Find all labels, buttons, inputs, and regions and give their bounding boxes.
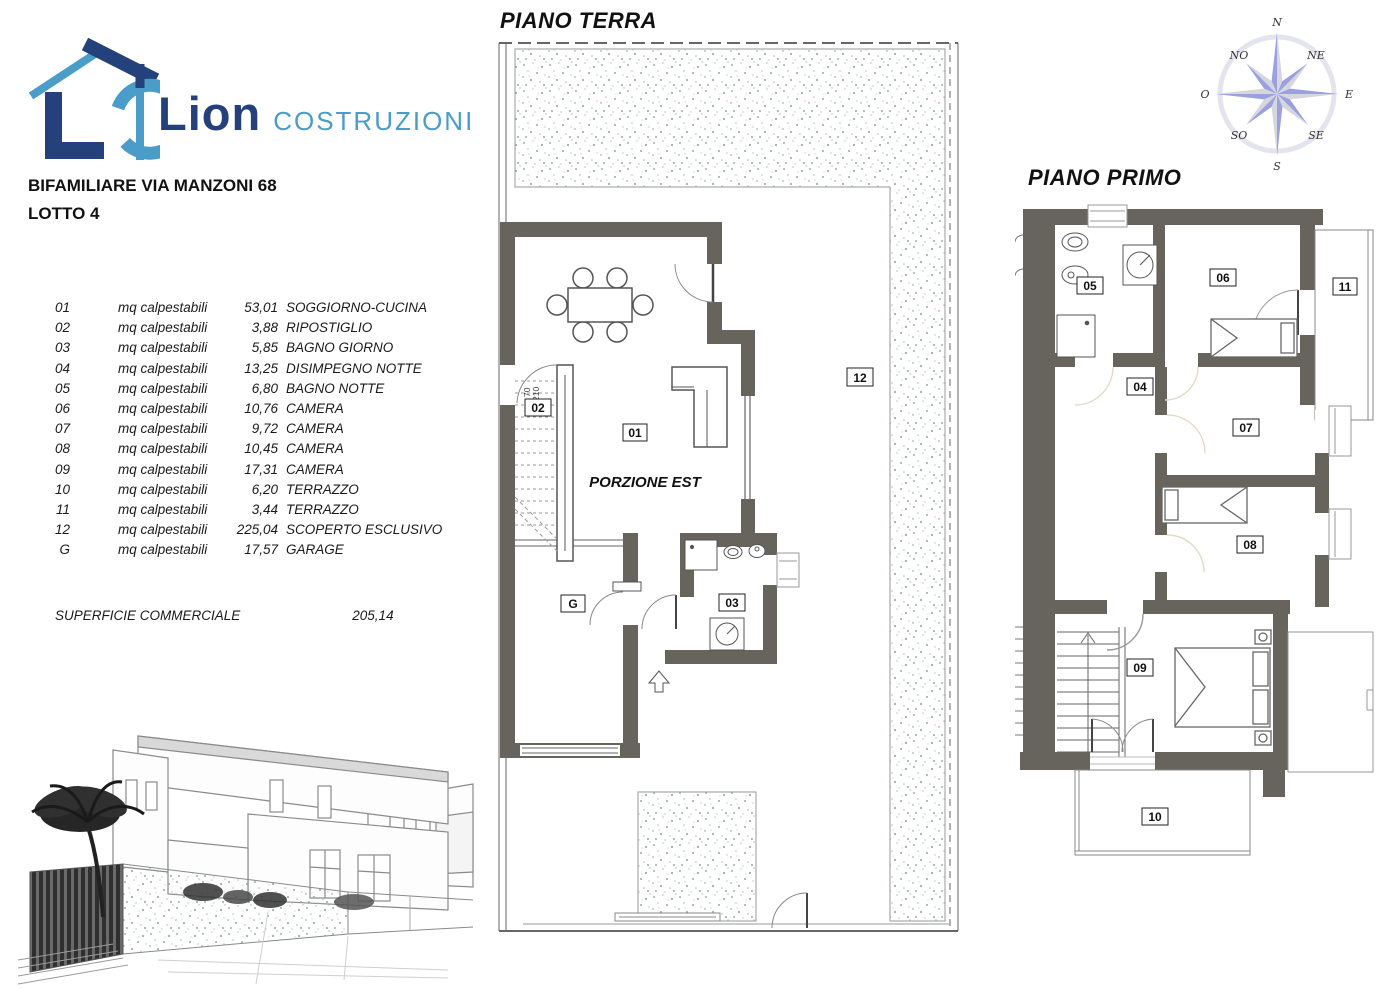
- table-row: 02mq calpestabili3,88RIPOSTIGLIO: [48, 320, 442, 340]
- summary-label: SUPERFICIE COMMERCIALE: [55, 608, 240, 623]
- brand-suffix: COSTRUZIONI: [273, 106, 474, 137]
- room-label-02: 02: [531, 401, 545, 415]
- first-floor-plan: 05 06 11 04 07 08 09 10: [1015, 195, 1385, 915]
- room-label-12: 12: [853, 371, 867, 385]
- room-label-garage: G: [568, 597, 577, 611]
- table-row: 08mq calpestabili10,45CAMERA: [48, 441, 442, 461]
- sink: [685, 540, 717, 570]
- compass-se: SE: [1308, 129, 1324, 142]
- table-row: 06mq calpestabili10,76CAMERA: [48, 401, 442, 421]
- room-label-07: 07: [1239, 421, 1253, 435]
- summary-value: 205,14: [352, 608, 393, 623]
- driveway-stipple: [638, 792, 756, 921]
- company-brandline: Lion COSTRUZIONI: [158, 86, 474, 141]
- table-row: 05mq calpestabili6,80BAGNO NOTTE: [48, 381, 442, 401]
- bathroom-05-fixtures: [1057, 233, 1157, 357]
- table-row: 11mq calpestabili3,44TERRAZZO: [48, 502, 442, 522]
- table-row: 09mq calpestabili17,31CAMERA: [48, 462, 442, 482]
- compass-e: E: [1344, 88, 1353, 101]
- bathroom-window: [777, 553, 799, 587]
- exterior-render-sketch: [18, 722, 478, 987]
- compass-s: S: [1273, 160, 1281, 172]
- adjacent-unit-hints: [1015, 235, 1023, 735]
- project-lot: LOTTO 4: [28, 200, 277, 228]
- ground-floor-plan: 70 210 01: [495, 35, 965, 935]
- areas-table: 01mq calpestabili53,01SOGGIORNO-CUCINA 0…: [48, 300, 442, 562]
- courtyard-stipple-area: [515, 49, 945, 921]
- room-label-09: 09: [1133, 661, 1147, 675]
- double-bed-room09: [1175, 630, 1271, 745]
- room-label-06: 06: [1216, 271, 1230, 285]
- compass-n: N: [1271, 16, 1282, 29]
- room-label-11: 11: [1339, 280, 1352, 294]
- bed-room08: [1162, 487, 1247, 523]
- windows: [742, 396, 799, 587]
- room-label-10: 10: [1148, 810, 1162, 824]
- french-door: [1090, 719, 1155, 764]
- table-row: 03mq calpestabili5,85BAGNO GIORNO: [48, 340, 442, 360]
- company-logo-house-icon: [25, 30, 160, 165]
- compass-rose: N NE E SE S SO O NO: [1197, 12, 1357, 172]
- entry-walkway: [642, 595, 676, 692]
- bed-room06: [1211, 319, 1297, 357]
- room-label-08: 08: [1243, 538, 1257, 552]
- plan-sheet: { "brand": { "name": "Lion", "suffix": "…: [0, 0, 1400, 990]
- compass-ne: NE: [1306, 49, 1325, 62]
- shower-tray: [1057, 315, 1095, 357]
- roof-terrace: [1288, 632, 1373, 772]
- first-floor-title: PIANO PRIMO: [1028, 165, 1181, 191]
- logo-letter-l: [45, 92, 104, 159]
- entrance-arrow-icon: [649, 671, 669, 692]
- compass-no: NO: [1229, 49, 1249, 62]
- room-label-01: 01: [628, 426, 642, 440]
- room-label-04: 04: [1133, 380, 1147, 394]
- ground-floor-title: PIANO TERRA: [500, 8, 657, 34]
- brand-name: Lion: [158, 86, 261, 141]
- portion-label: PORZIONE EST: [589, 474, 703, 491]
- table-row: 07mq calpestabili9,72CAMERA: [48, 421, 442, 441]
- project-header: BIFAMILIARE VIA MANZONI 68 LOTTO 4: [28, 172, 277, 228]
- table-row: Gmq calpestabili17,57GARAGE: [48, 542, 442, 562]
- sofa: [672, 367, 727, 447]
- commercial-area-summary: SUPERFICIE COMMERCIALE 205,14: [55, 608, 394, 623]
- top-window: [1088, 205, 1127, 227]
- entry-door: [675, 264, 722, 302]
- table-row: 01mq calpestabili53,01SOGGIORNO-CUCINA: [48, 300, 442, 320]
- project-title: BIFAMILIARE VIA MANZONI 68: [28, 172, 277, 200]
- garage-door-leaf: [613, 582, 641, 591]
- dining-table: [547, 268, 653, 342]
- room-label-05: 05: [1083, 279, 1097, 293]
- table-row: 04mq calpestabili13,25DISIMPEGNO NOTTE: [48, 361, 442, 381]
- garage-details: [515, 540, 641, 756]
- table-row: 12mq calpestabili225,04SCOPERTO ESCLUSIV…: [48, 522, 442, 542]
- compass-so: SO: [1231, 129, 1248, 142]
- table-row: 10mq calpestabili6,20TERRAZZO: [48, 482, 442, 502]
- room-label-03: 03: [725, 596, 739, 610]
- compass-o: O: [1200, 88, 1209, 101]
